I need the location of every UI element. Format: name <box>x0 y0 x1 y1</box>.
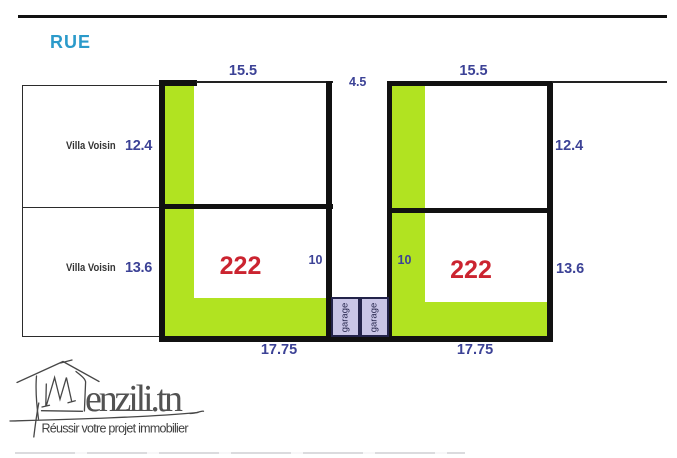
svg-text:enzili.tn: enzili.tn <box>85 378 183 420</box>
svg-text:Réussir votre projet immobilie: Réussir votre projet immobilier <box>42 422 189 436</box>
